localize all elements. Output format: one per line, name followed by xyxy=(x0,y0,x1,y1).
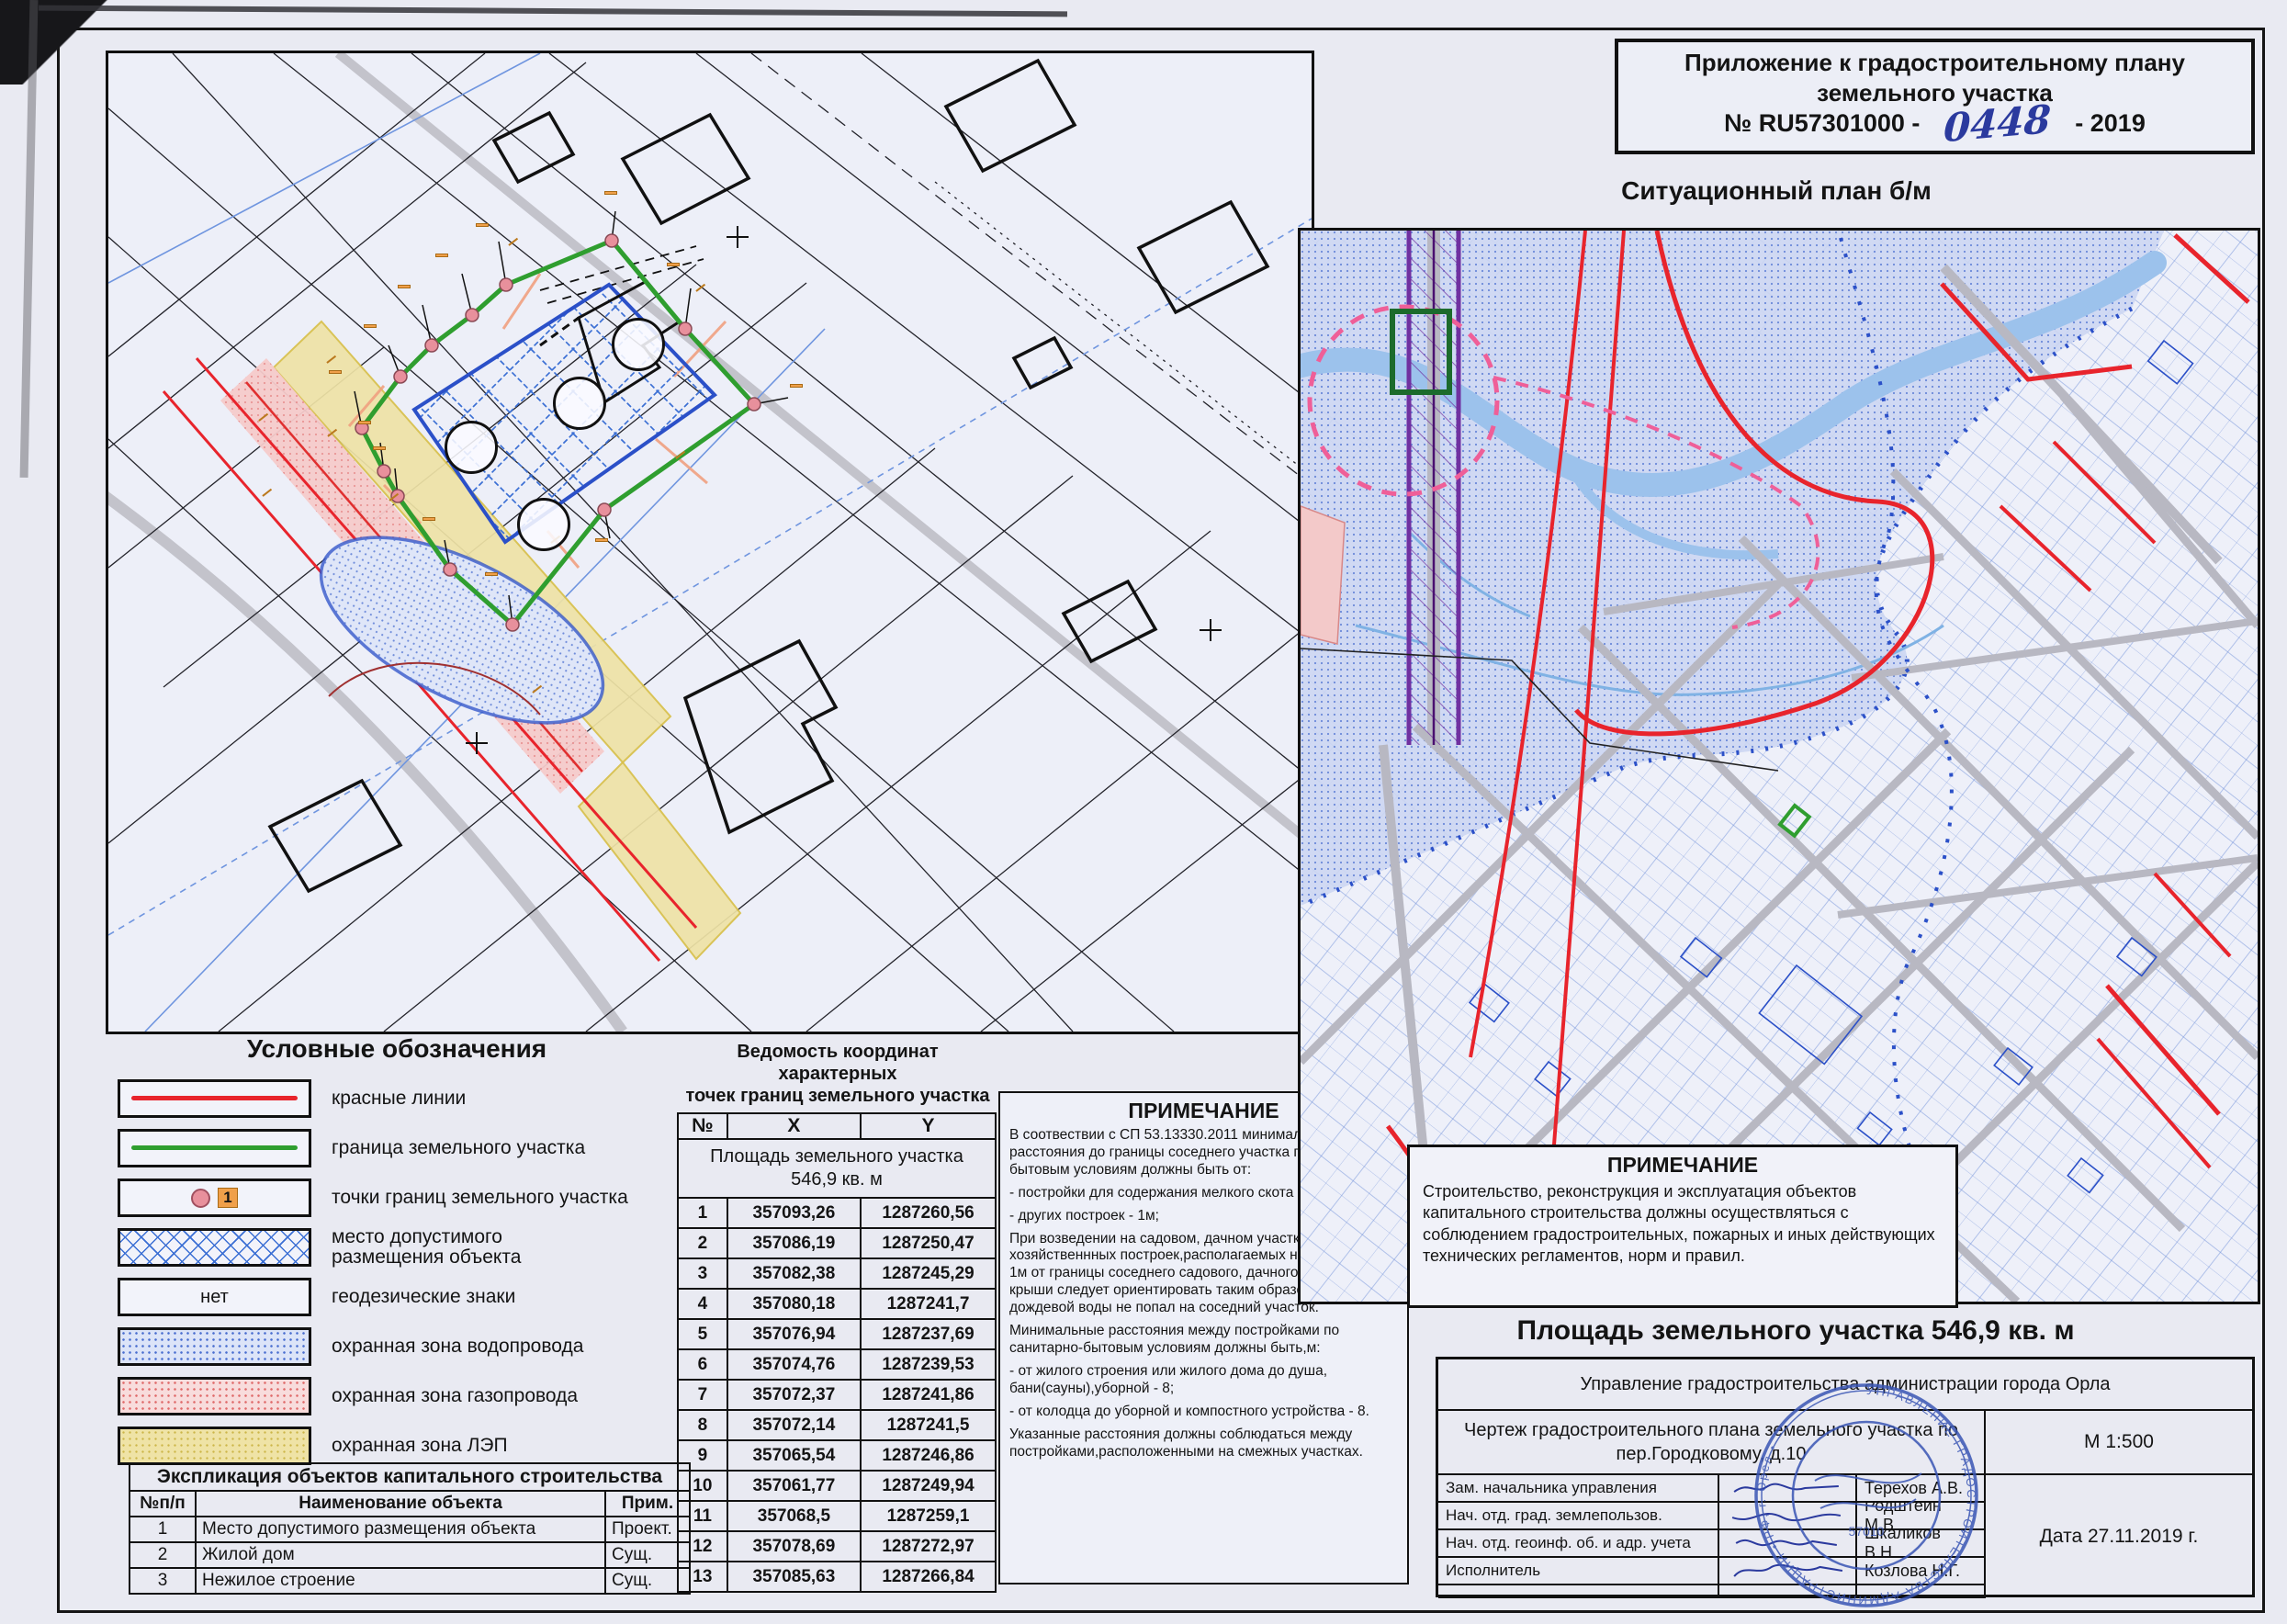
coordinates-table-title: Ведомость координат характерных точек гр… xyxy=(677,1041,998,1107)
note-title: ПРИМЕЧАНИЕ xyxy=(1423,1153,1943,1178)
explication-row: 1 Место допустимого размещения объекта П… xyxy=(130,1517,690,1542)
legend-item: охранная зона ЛЭП xyxy=(118,1426,676,1466)
official-stamp: УПРАВЛЕНИЕ ГРАДОСТРОИТЕЛЬСТВА АДМИНИСТРА… xyxy=(1741,1370,1991,1620)
header-line2: земельного участка xyxy=(1618,78,2251,108)
coordinate-row: 5 357076,94 1287237,69 xyxy=(678,1319,996,1349)
explication-row: 2 Жилой дом Сущ. xyxy=(130,1542,690,1568)
explication-header-name: Наименование объекта xyxy=(196,1491,605,1517)
coordinate-cell: 357065,54 xyxy=(727,1440,861,1471)
signatory-role: Нач. отд. геоинф. об. и адр. учета xyxy=(1438,1530,1719,1558)
legend-swatch-text: нет xyxy=(200,1287,229,1308)
boundary-point-label xyxy=(595,538,608,542)
legend-swatch: 1 xyxy=(118,1179,311,1217)
coordinate-cell: 1287241,5 xyxy=(861,1410,996,1440)
legend-item: место допустимого размещения объекта xyxy=(118,1227,676,1268)
note-box-right: ПРИМЕЧАНИЕ Строительство, реконструкция … xyxy=(1407,1145,1958,1308)
explication-row: 3 Нежилое строение Сущ. xyxy=(130,1568,690,1594)
legend-item-label: точки границ земельного участка xyxy=(332,1188,628,1208)
explication-table: Экспликация объектов капитального строит… xyxy=(129,1462,691,1595)
coordinate-cell: 357072,14 xyxy=(727,1410,861,1440)
legend-item: охранная зона газопровода xyxy=(118,1376,676,1416)
boundary-point-label xyxy=(604,191,617,195)
coordinate-cell: 357093,26 xyxy=(727,1198,861,1228)
note-paragraph: - от колодца до уборной и компостного ус… xyxy=(1009,1404,1398,1421)
plot-area-cell: Площадь земельного участка 546,9 кв. м xyxy=(678,1139,996,1198)
legend-item-label: геодезические знаки xyxy=(332,1287,515,1307)
explication-cell: Жилой дом xyxy=(196,1542,605,1568)
coordinate-cell: 4 xyxy=(678,1289,727,1319)
site-plan-drawing xyxy=(108,53,1312,1032)
handwritten-number: 0448 xyxy=(1943,105,2052,141)
legend-item-label: охранная зона ЛЭП xyxy=(332,1436,508,1456)
coordinate-cell: 3 xyxy=(678,1258,727,1289)
legend-item-label: охранная зона водопровода xyxy=(332,1336,583,1357)
document-number-suffix: - 2019 xyxy=(2075,109,2146,138)
legend-item-label: красные линии xyxy=(332,1088,466,1109)
coordinate-cell: 1287250,47 xyxy=(861,1228,996,1258)
coordinate-cell: 357082,38 xyxy=(727,1258,861,1289)
boundary-point-label xyxy=(358,421,371,424)
document-header: Приложение к градостроительному плану зе… xyxy=(1615,39,2255,154)
boundary-point-label xyxy=(422,517,435,521)
coordinate-cell: 357072,37 xyxy=(727,1380,861,1410)
coordinate-cell: 1287241,86 xyxy=(861,1380,996,1410)
coordinate-cell: 2 xyxy=(678,1228,727,1258)
coordinate-cell: 357076,94 xyxy=(727,1319,861,1349)
coord-header-y: Y xyxy=(861,1113,996,1139)
explication-cell: Нежилое строение xyxy=(196,1568,605,1594)
boundary-point-dot-icon xyxy=(191,1189,210,1208)
scan-edge-artifact xyxy=(20,0,39,478)
coordinate-cell: 1287245,29 xyxy=(861,1258,996,1289)
boundary-point-number: 1 xyxy=(218,1188,237,1208)
date: Дата 27.11.2019 г. xyxy=(1986,1475,2252,1598)
coordinate-cell: 357061,77 xyxy=(727,1471,861,1501)
coordinate-cell: 1287259,1 xyxy=(861,1501,996,1531)
coordinate-cell: 1287237,69 xyxy=(861,1319,996,1349)
legend-item-label: граница земельного участка xyxy=(332,1138,585,1158)
boundary-point-label xyxy=(364,324,377,328)
drawing-scale: М 1:500 xyxy=(1986,1411,2252,1475)
boundary-point-label xyxy=(398,285,411,288)
coordinate-cell: 357085,63 xyxy=(727,1562,861,1592)
coordinate-cell: 11 xyxy=(678,1501,727,1531)
legend-item-label: охранная зона газопровода xyxy=(332,1386,578,1406)
empty-cell xyxy=(1438,1585,1719,1598)
site-plan-map xyxy=(106,51,1314,1034)
signatory-role: Зам. начальника управления xyxy=(1438,1475,1719,1503)
coordinate-cell: 6 xyxy=(678,1349,727,1380)
coordinate-cell: 357086,19 xyxy=(727,1228,861,1258)
coordinate-cell: 12 xyxy=(678,1531,727,1562)
explication-title: Экспликация объектов капитального строит… xyxy=(130,1463,690,1491)
coordinate-row: 8 357072,14 1287241,5 xyxy=(678,1410,996,1440)
boundary-point-label xyxy=(790,384,803,388)
boundary-point-label xyxy=(476,223,489,227)
coordinate-cell: 357078,69 xyxy=(727,1531,861,1562)
scan-edge-artifact xyxy=(39,6,1067,17)
coordinate-row: 6 357074,76 1287239,53 xyxy=(678,1349,996,1380)
explication-cell: 1 xyxy=(130,1517,196,1542)
coordinates-table: Ведомость координат характерных точек гр… xyxy=(677,1041,998,1593)
legend-swatch xyxy=(118,1377,311,1415)
situational-plan-title: Ситуационный план б/м xyxy=(1298,176,2255,206)
coordinate-row: 4 357080,18 1287241,7 xyxy=(678,1289,996,1319)
coordinate-cell: 1287239,53 xyxy=(861,1349,996,1380)
signatory-role: Нач. отд. град. землепользов. xyxy=(1438,1503,1719,1530)
signatory-role: Исполнитель xyxy=(1438,1558,1719,1585)
legend: Условные обозначения красные линии xyxy=(118,1034,676,1475)
coordinate-cell: 5 xyxy=(678,1319,727,1349)
legend-swatch xyxy=(118,1079,311,1118)
coordinate-cell: 1287246,86 xyxy=(861,1440,996,1471)
coordinate-cell: 1287249,94 xyxy=(861,1471,996,1501)
legend-swatch xyxy=(118,1129,311,1167)
coord-header-x: X xyxy=(727,1113,861,1139)
coordinate-cell: 1287260,56 xyxy=(861,1198,996,1228)
object-number xyxy=(553,377,606,430)
boundary-point-label xyxy=(373,446,386,450)
coordinate-cell: 13 xyxy=(678,1562,727,1592)
legend-item: охранная зона водопровода xyxy=(118,1326,676,1367)
legend-items: красные линии граница земельного участка… xyxy=(118,1078,676,1466)
situation-map-drawing xyxy=(1301,231,2258,1302)
document-number-prefix: № RU57301000 - xyxy=(1724,109,1920,138)
coordinate-cell: 1287272,97 xyxy=(861,1531,996,1562)
legend-title: Условные обозначения xyxy=(118,1034,676,1064)
coordinate-cell: 7 xyxy=(678,1380,727,1410)
coordinate-cell: 10 xyxy=(678,1471,727,1501)
coordinate-cell: 1 xyxy=(678,1198,727,1228)
object-number xyxy=(445,421,498,474)
legend-swatch xyxy=(118,1327,311,1366)
object-number xyxy=(517,498,570,551)
plot-area-statement: Площадь земельного участка 546,9 кв. м xyxy=(1336,1315,2255,1347)
explication-header-num: №п/п xyxy=(130,1491,196,1517)
coordinate-row: 3 357082,38 1287245,29 xyxy=(678,1258,996,1289)
note-paragraph: Указанные расстояния должны соблюдаться … xyxy=(1009,1427,1398,1461)
legend-item: граница земельного участка xyxy=(118,1128,676,1168)
header-number-line: № RU57301000 - 0448 - 2019 xyxy=(1618,109,2251,138)
coordinate-cell: 1287241,7 xyxy=(861,1289,996,1319)
legend-item-label: место допустимого размещения объекта xyxy=(332,1227,521,1268)
legend-swatch: нет xyxy=(118,1278,311,1316)
explication-cell: 2 xyxy=(130,1542,196,1568)
note-paragraph: - от жилого строения или жилого дома до … xyxy=(1009,1363,1398,1398)
stamp-inner-text: 57010 xyxy=(1849,1524,1885,1539)
coordinate-cell: 9 xyxy=(678,1440,727,1471)
scanned-sheet: Условные обозначения красные линии xyxy=(0,0,2287,1624)
legend-swatch xyxy=(118,1427,311,1465)
situation-map xyxy=(1298,228,2260,1304)
coordinate-cell: 357074,76 xyxy=(727,1349,861,1380)
legend-swatch xyxy=(118,1228,311,1267)
coordinate-cell: 1287266,84 xyxy=(861,1562,996,1592)
explication-cell: Место допустимого размещения объекта xyxy=(196,1517,605,1542)
coordinate-cell: 357080,18 xyxy=(727,1289,861,1319)
note-text: Строительство, реконструкция и эксплуата… xyxy=(1423,1181,1943,1268)
coordinate-row: 1 357093,26 1287260,56 xyxy=(678,1198,996,1228)
boundary-point-label xyxy=(435,254,448,257)
legend-item: красные линии xyxy=(118,1078,676,1119)
coord-header-num: № xyxy=(678,1113,727,1139)
legend-item: 1 точки границ земельного участка xyxy=(118,1178,676,1218)
coordinate-row: 2 357086,19 1287250,47 xyxy=(678,1228,996,1258)
explication-cell: 3 xyxy=(130,1568,196,1594)
object-number xyxy=(612,318,665,371)
header-line1: Приложение к градостроительному плану xyxy=(1618,48,2251,78)
boundary-point-label xyxy=(329,370,342,374)
boundary-point-label xyxy=(667,263,680,266)
coordinate-row: 12 357078,69 1287272,97 xyxy=(678,1531,996,1562)
legend-item: нет геодезические знаки xyxy=(118,1277,676,1317)
coordinate-row: 7 357072,37 1287241,86 xyxy=(678,1380,996,1410)
coordinate-row: 9 357065,54 1287246,86 xyxy=(678,1440,996,1471)
coordinate-row: 13 357085,63 1287266,84 xyxy=(678,1562,996,1592)
coordinate-row: 10 357061,77 1287249,94 xyxy=(678,1471,996,1501)
coordinate-cell: 8 xyxy=(678,1410,727,1440)
coordinate-row: 11 357068,5 1287259,1 xyxy=(678,1501,996,1531)
boundary-point-label xyxy=(485,572,498,576)
coordinate-cell: 357068,5 xyxy=(727,1501,861,1531)
